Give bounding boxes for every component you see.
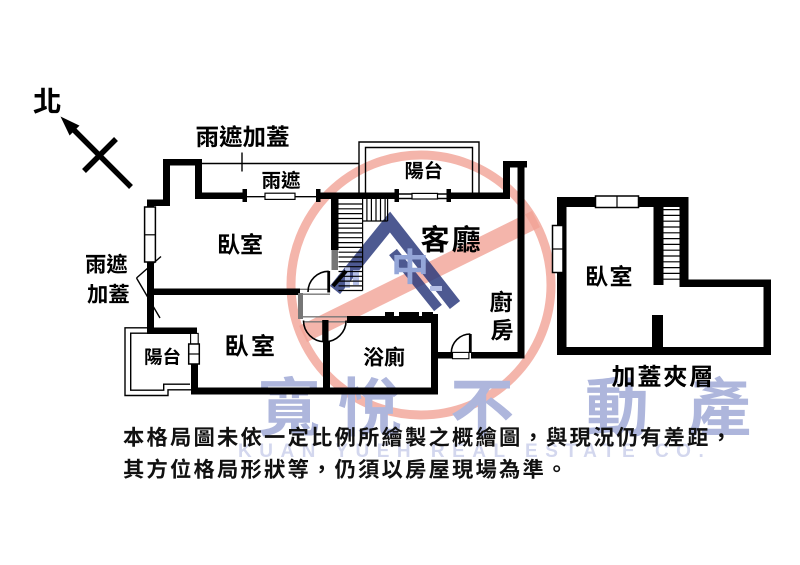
svg-text:KUAN YUEH REAL ESTATE CO.: KUAN YUEH REAL ESTATE CO.	[238, 441, 711, 462]
